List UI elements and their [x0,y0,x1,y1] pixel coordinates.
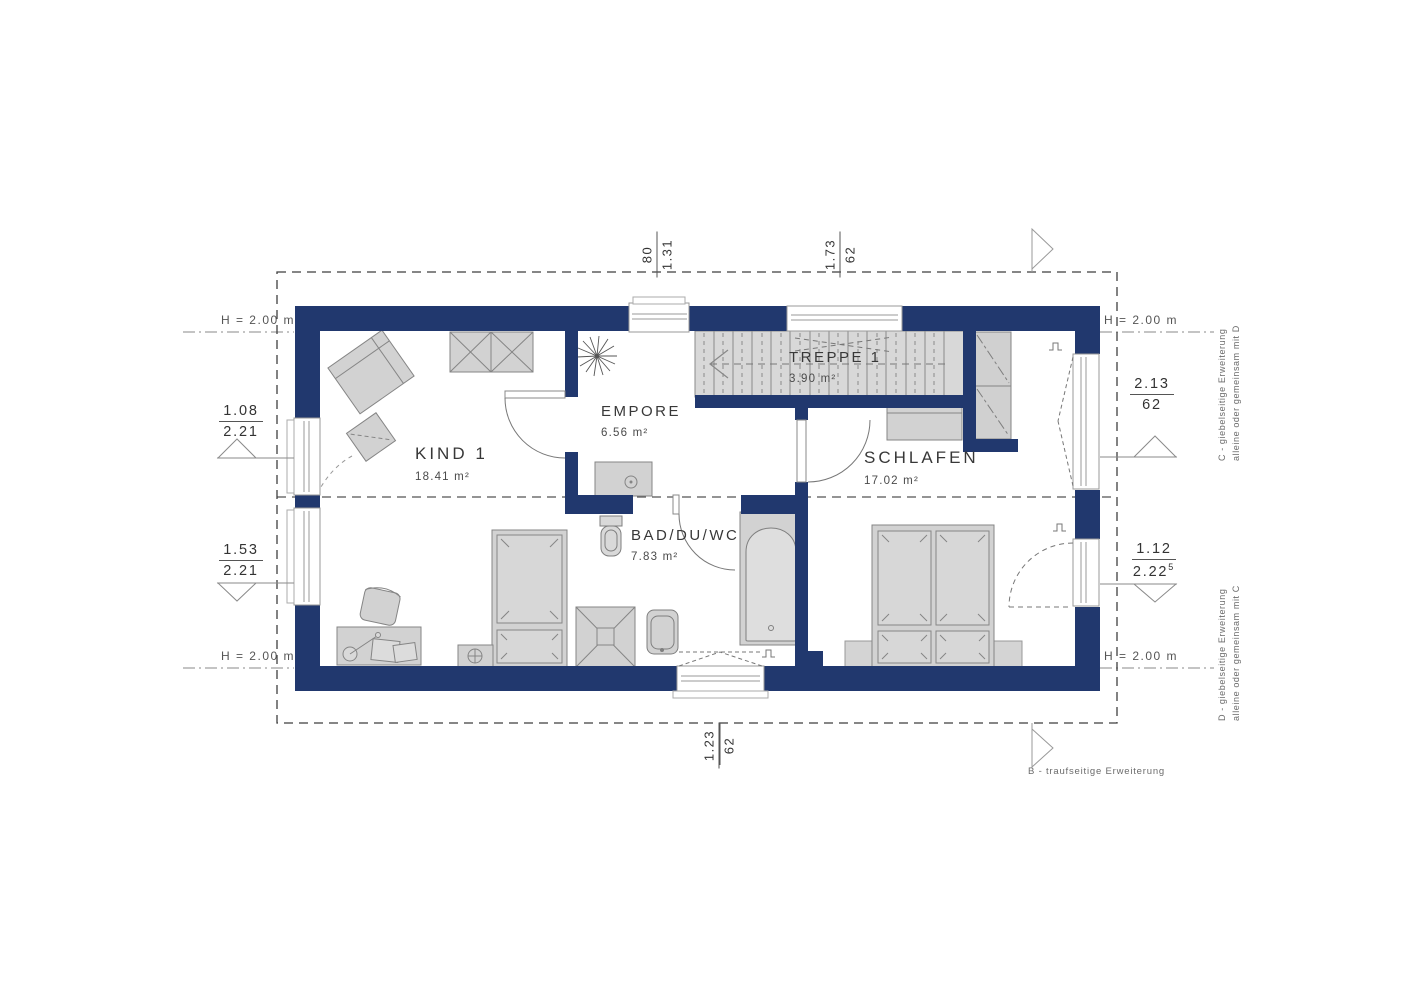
height-label-bottom-right: H = 2.00 m [1104,649,1178,663]
sofa [328,330,414,414]
dim-value: 2.22 [1133,564,1168,580]
dim-value: 1.23 [702,730,717,761]
floor-plan-svg [0,0,1414,1000]
fraction-line [719,723,720,769]
height-label-top-right: H = 2.00 m [1104,313,1178,327]
note-extension-b: B - traufseitige Erweiterung [1028,766,1165,777]
note-extension-d: D - giebelseitige Erweiterung alleine od… [1217,571,1241,721]
room-label-kind1: KIND 1 18.41 m² [415,444,488,483]
dim-value: 2.225 [1133,562,1175,580]
wardrobe-niche [975,332,1011,439]
dim-value: 2.21 [223,563,258,579]
dim-value: 2.21 [223,424,258,440]
room-area: 6.56 m² [601,427,681,439]
sill-step-symbol [1053,524,1066,531]
note-extension-c: C - giebelseitige Erweiterung alleine od… [1217,311,1241,461]
dim-value: 62 [843,246,858,263]
toilet [600,516,622,556]
dim-top-window-treppe: 1.73 62 [823,229,858,281]
bathtub [740,512,802,645]
note-line: D - giebelseitige Erweiterung [1217,571,1227,721]
empore-cabinet [595,462,652,496]
floor-plan: KIND 1 18.41 m² EMPORE 6.56 m² TREPPE 1 … [0,0,1414,1000]
room-area: 17.02 m² [864,475,979,487]
window-top-treppe [787,306,902,331]
note-line: alleine oder gemeinsam mit D [1231,311,1241,461]
dim-right-lower: 1.12 2.225 [1126,541,1182,580]
room-label-bad: BAD/DU/WC 7.83 m² [631,527,739,563]
note-line: alleine oder gemeinsam mit C [1231,571,1241,721]
room-label-schlafen: SCHLAFEN 17.02 m² [864,448,979,487]
corner-triangle-bottom [1032,723,1053,767]
sill-step-symbol [762,650,775,657]
dim-value: 62 [1142,397,1162,413]
dim-top-window-empore: 80 1.31 [640,229,675,281]
height-label-bottom-left: H = 2.00 m [203,649,295,663]
window-right-upper [1049,343,1099,489]
bed-kind1 [492,530,567,668]
dim-bottom-window-bad: 1.23 62 [702,720,737,772]
room-name: BAD/DU/WC [631,527,739,544]
dim-value: 1.31 [660,239,675,270]
dim-value: 1.73 [823,239,838,270]
fraction-line [1130,394,1174,395]
window-bottom-bad [673,652,768,698]
plant-icon [577,336,617,376]
room-name: SCHLAFEN [864,448,979,468]
fraction-line [219,560,263,561]
office-chair [359,585,401,627]
sill-step-symbol [1049,343,1062,350]
window-top-empore [629,297,689,332]
fraction-line [840,232,841,278]
dim-left-upper: 1.08 2.21 [213,403,269,440]
room-label-treppe: TREPPE 1 3.90 m² [789,349,882,385]
window-left-lower [287,508,320,605]
dim-value: 2.13 [1134,376,1169,392]
dim-value: 1.08 [223,403,258,419]
dim-value: 62 [722,737,737,754]
fraction-line [657,232,658,278]
fraction-line [1132,559,1176,560]
dim-value: 1.12 [1136,541,1171,557]
armchair [347,413,396,461]
room-name: EMPORE [601,403,681,420]
desk [337,627,421,665]
dim-superscript: 5 [1168,562,1175,572]
room-area: 3.90 m² [789,373,882,385]
fraction-line [219,421,263,422]
sideboard [887,407,962,440]
double-bed [845,525,1022,668]
corner-triangle-top [1032,229,1053,272]
room-name: KIND 1 [415,444,488,464]
dim-value: 1.53 [223,542,258,558]
height-label-top-left: H = 2.00 m [203,313,295,327]
window-left-upper [287,418,320,495]
wardrobe-kind1 [450,332,533,372]
nightstand-kind1 [458,645,493,667]
door-kind1 [505,391,565,458]
room-area: 7.83 m² [631,551,739,563]
door-schlafen [797,420,870,482]
shower [576,607,635,667]
note-line: C - giebelseitige Erweiterung [1217,311,1227,461]
dim-left-lower: 1.53 2.21 [213,542,269,579]
washbasin [647,610,678,654]
room-area: 18.41 m² [415,471,488,483]
leader-dashed-line [316,456,352,496]
room-label-empore: EMPORE 6.56 m² [601,403,681,439]
dim-value: 80 [640,246,655,263]
dim-right-upper: 2.13 62 [1124,376,1180,413]
room-name: TREPPE 1 [789,349,882,366]
